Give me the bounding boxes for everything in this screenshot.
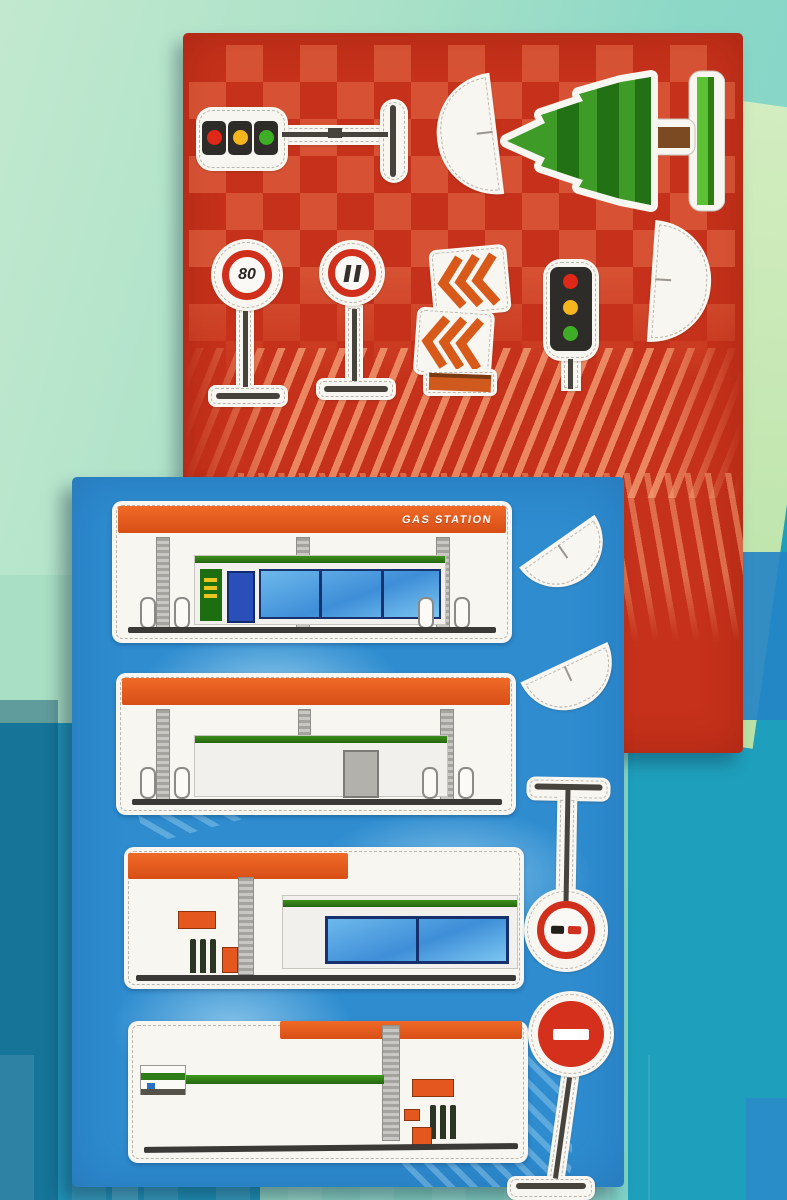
vending-machine-icon	[200, 569, 222, 621]
fuel-pump-icon	[140, 597, 156, 629]
nozzle-icon	[440, 1105, 446, 1139]
dome-cut-mark	[557, 544, 568, 558]
roof-trim	[195, 556, 445, 563]
pole-icon	[568, 359, 573, 389]
sign-bar-glyph	[353, 265, 361, 282]
forecourt-base	[132, 799, 502, 805]
pump-unit-icon	[412, 1127, 432, 1145]
yellow-light-icon	[563, 300, 578, 315]
forecourt-base	[136, 975, 516, 981]
sticker-gas-station-plain	[116, 673, 516, 815]
green-light-icon	[563, 326, 578, 341]
canopy	[122, 678, 510, 705]
tree-stand-shade	[708, 77, 714, 205]
pump-unit-icon	[222, 947, 238, 973]
barrier-machine-icon	[140, 1065, 186, 1095]
fuel-pump-icon	[140, 767, 156, 799]
fuel-pump-icon	[422, 767, 438, 799]
sticker-no-entry-sign	[507, 989, 617, 1200]
speed-limit-80-icon: 80	[222, 250, 272, 300]
nozzle-icon	[200, 939, 206, 973]
vending-label	[204, 576, 217, 598]
base-bar-icon	[324, 386, 388, 392]
traffic-light-cell	[254, 121, 278, 155]
photo-sticker-sheets: 80	[0, 0, 787, 1200]
sticker-no-overtaking-sign	[519, 774, 614, 976]
garage-door-icon	[343, 750, 379, 798]
no-entry-bar-glyph	[553, 1029, 589, 1040]
pole-clamp-icon	[328, 128, 342, 138]
fuel-pump-icon	[174, 597, 190, 629]
nozzle-icon	[190, 939, 196, 973]
sticker-dome-half	[519, 515, 621, 605]
shop-window	[325, 916, 509, 964]
sticker-gas-station-pumps	[124, 847, 524, 989]
red-light-icon	[563, 274, 578, 289]
shop-window	[259, 569, 441, 619]
dome-cut-mark	[564, 666, 573, 681]
machine-base	[141, 1089, 185, 1095]
roof-trim	[283, 900, 517, 907]
pole-icon	[243, 311, 248, 387]
canopy	[280, 1021, 522, 1039]
car-red-glyph	[568, 926, 581, 934]
fuel-pump-icon	[454, 597, 470, 629]
price-sign-icon	[178, 911, 216, 929]
stand-bar-icon	[390, 105, 396, 177]
tree-stand-bar-icon	[697, 77, 708, 205]
canopy-pillar	[238, 877, 254, 975]
shop-building	[194, 555, 446, 625]
mat-blue-patch	[746, 1098, 787, 1200]
pole-icon	[352, 309, 357, 381]
traffic-light-cell	[202, 121, 226, 155]
fuel-pump-icon	[458, 767, 474, 799]
shop-building	[282, 895, 518, 969]
canopy-pillar	[156, 709, 170, 801]
sign-bar-glyph	[343, 265, 351, 282]
canopy: GAS STATION	[118, 506, 506, 533]
nozzle-icon	[450, 1105, 456, 1139]
sticker-gas-station-front: GAS STATION	[112, 501, 512, 643]
red-light-icon	[207, 130, 222, 145]
sticker-traffic-light-horizontal	[196, 97, 418, 185]
forecourt-base	[144, 1143, 518, 1153]
canopy-pillar	[382, 1025, 400, 1141]
roof-trim	[195, 736, 447, 743]
blue-sticker-sheet: GAS STATION	[72, 477, 624, 1187]
tree-shade-stripes	[557, 69, 651, 215]
traffic-light-icon	[550, 267, 592, 351]
green-light-icon	[259, 130, 274, 145]
sticker-chevron-boards	[415, 245, 511, 397]
window-mullion	[416, 919, 419, 961]
fuel-pump-icon	[418, 597, 434, 629]
car-black-glyph	[551, 926, 564, 934]
traffic-light-cell	[228, 121, 252, 155]
gas-station-sign-text: GAS STATION	[401, 514, 493, 526]
base-bar-icon	[216, 393, 280, 399]
machine-stripe	[141, 1073, 185, 1080]
no-stopping-icon	[328, 249, 376, 297]
sticker-no-stopping-sign	[311, 231, 399, 413]
shop-building	[194, 735, 448, 797]
sticker-dome-half	[520, 642, 627, 726]
window-mullion	[381, 571, 384, 617]
no-entry-icon	[538, 1001, 604, 1067]
fuel-pump-icon	[174, 767, 190, 799]
nozzle-icon	[210, 939, 216, 973]
canopy-pillar	[156, 537, 170, 629]
barrier-bar-icon	[156, 1075, 384, 1084]
speed-limit-value: 80	[238, 266, 256, 284]
yellow-light-icon	[233, 130, 248, 145]
canopy	[128, 853, 348, 879]
window-mullion	[319, 571, 322, 617]
sticker-speed-limit-sign: 80	[203, 233, 295, 417]
sticker-gas-station-forecourt	[128, 1021, 528, 1163]
dome-cut-mark	[477, 131, 493, 135]
forecourt-base	[128, 627, 496, 633]
dome-cut-mark	[655, 278, 671, 281]
pine-tree-icon	[499, 69, 725, 215]
sticker-traffic-light-vertical	[535, 259, 605, 391]
pump-unit-icon	[404, 1109, 420, 1121]
sticker-pine-tree	[499, 69, 725, 215]
shop-door-icon	[227, 571, 255, 623]
base-bar-icon	[516, 1183, 586, 1189]
price-sign-icon	[412, 1079, 454, 1097]
chevron-base-icon	[429, 373, 492, 392]
